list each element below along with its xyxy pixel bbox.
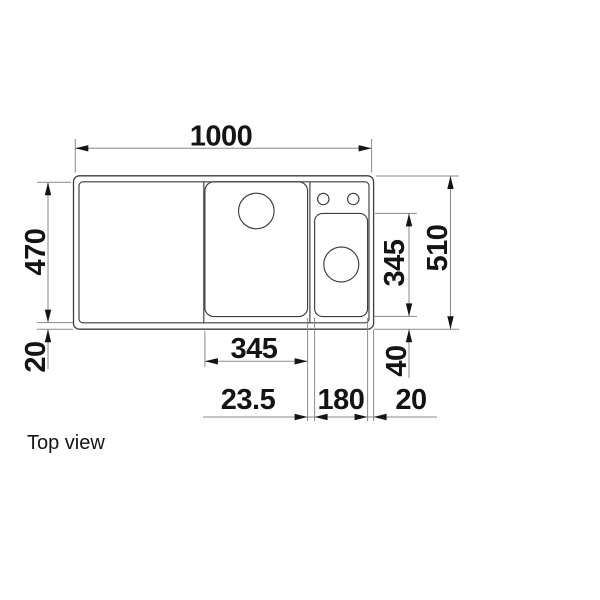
drawing-svg: 1000 470 20 345 510 40 345 23.5 180 20 T…	[0, 0, 600, 600]
tap-hole-left-icon	[318, 193, 329, 204]
technical-drawing-sink-top-view: 1000 470 20 345 510 40 345 23.5 180 20 T…	[0, 0, 600, 600]
dim-label-width-overall: 1000	[190, 121, 253, 153]
caption-top-view: Top view	[27, 432, 105, 454]
arrowhead	[406, 303, 412, 316]
dim-label-rim-bottom: 20	[20, 341, 52, 372]
main-bowl	[205, 182, 308, 317]
dim-label-rim-right: 20	[395, 384, 426, 416]
tap-hole-right-icon	[348, 193, 359, 204]
arrowhead	[45, 310, 51, 323]
arrowhead	[75, 145, 88, 151]
dim-label-bowl-gap: 23.5	[221, 384, 276, 416]
dim-label-half-bowl-width: 180	[318, 384, 365, 416]
arrowhead	[447, 316, 453, 329]
dim-label-depth-overall: 510	[422, 225, 454, 272]
arrowhead	[359, 145, 372, 151]
dimension-labels: 1000 470 20 345 510 40 345 23.5 180 20	[20, 121, 454, 417]
dim-label-bowl-width: 345	[231, 333, 278, 365]
half-bowl	[315, 213, 368, 316]
sink-rim-inner	[79, 182, 369, 323]
arrowhead	[406, 213, 412, 226]
arrowhead	[295, 414, 308, 420]
arrowhead	[205, 358, 218, 364]
arrowhead	[374, 414, 387, 420]
main-bowl-drain-icon	[238, 193, 274, 229]
arrowhead	[45, 182, 51, 195]
dim-label-half-bowl-bottom-offset: 40	[381, 345, 413, 376]
half-bowl-drain-icon	[324, 247, 359, 282]
arrowhead	[447, 176, 453, 189]
arrowhead	[45, 329, 51, 342]
arrowhead	[295, 358, 308, 364]
dim-label-half-bowl-depth: 345	[379, 239, 411, 286]
arrowhead	[406, 329, 412, 342]
dim-label-depth-inner: 470	[20, 229, 52, 276]
sink-geometry	[74, 176, 374, 329]
